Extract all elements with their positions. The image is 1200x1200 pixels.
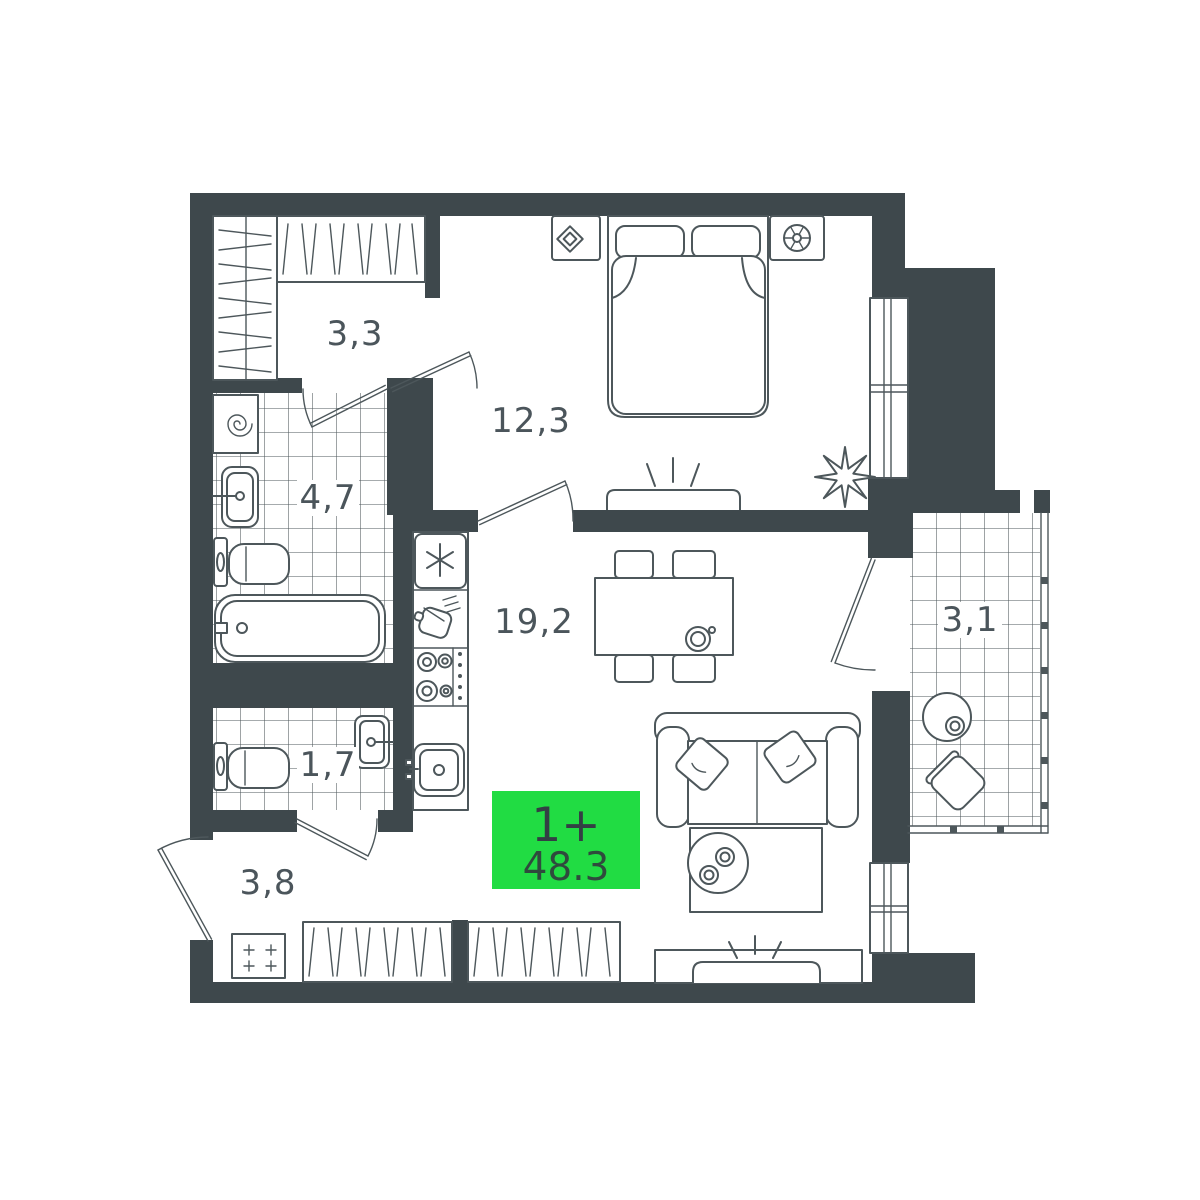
room-label-bathroom: 4,7	[299, 478, 356, 518]
bathroom-toilet-icon	[214, 538, 289, 586]
bed	[608, 216, 768, 417]
dining-table	[595, 578, 733, 655]
fan-icon	[784, 225, 810, 251]
balcony-table	[923, 693, 971, 741]
tv-icon	[693, 962, 820, 983]
wall-bedroom-bottom-left	[393, 510, 478, 532]
room-label-balcony: 3,1	[941, 600, 998, 640]
wall-right-upper	[872, 193, 905, 298]
room-label-hallway: 3,8	[239, 863, 296, 903]
bathtub-icon	[215, 595, 385, 662]
living-room-wardrobe	[468, 922, 620, 982]
hallway-wardrobe	[303, 922, 452, 982]
nightstand-right	[770, 216, 824, 260]
wall-wc-bottom-left	[190, 810, 297, 832]
room-label-entry-closet: 3,3	[326, 314, 383, 354]
wall-bottom-right-block	[872, 953, 975, 1003]
wall-wardrobe-stub	[452, 920, 468, 984]
wall-bedroom-bottom-right	[573, 510, 872, 532]
wall-bathroom-wc-divider	[190, 663, 413, 708]
wardrobe-top	[277, 216, 425, 282]
bedroom-window	[870, 298, 908, 478]
apartment-badge: 1+ 48.3	[492, 791, 640, 890]
wall-bathroom-east	[393, 393, 413, 832]
wall-wc-bottom-right	[378, 810, 413, 832]
chair	[673, 551, 715, 578]
floor-plan: 3,3 12,3 4,7 19,2 1,7 3,8 3,1 1+ 48.3	[0, 0, 1200, 1200]
room-label-kitchen-living: 19,2	[494, 602, 574, 642]
wall-bottom	[190, 982, 905, 1003]
living-room-window	[870, 863, 908, 953]
plant-icon	[815, 447, 875, 507]
pillow-left	[616, 226, 684, 258]
wall-closet-bedroom	[425, 216, 440, 298]
fridge-icon	[415, 534, 466, 588]
kitchen-sink-icon	[406, 744, 464, 796]
wall-neighbor-block	[905, 268, 995, 490]
nightstand-left	[552, 216, 600, 260]
chair	[615, 655, 653, 682]
kitchen-block	[406, 532, 468, 810]
pillow-right	[692, 226, 760, 258]
wall-left-upper	[190, 193, 213, 840]
sofa	[655, 713, 860, 827]
room-label-wc: 1,7	[299, 745, 356, 785]
wardrobe-vertical	[213, 216, 277, 380]
wc-sink-icon	[355, 716, 393, 768]
wc-toilet-icon	[214, 743, 289, 790]
wall-right-balcony-side	[872, 691, 910, 863]
washing-machine-icon	[213, 395, 258, 453]
chair	[615, 551, 653, 578]
wall-top	[190, 193, 905, 216]
wall-balcony-top-notch	[1020, 490, 1034, 513]
blanket	[612, 256, 765, 414]
rug-coffee-table	[688, 828, 822, 912]
chair	[673, 655, 715, 682]
doormat-icon	[232, 934, 285, 978]
room-label-bedroom: 12,3	[491, 401, 571, 441]
badge-area-value: 48.3	[523, 845, 610, 890]
